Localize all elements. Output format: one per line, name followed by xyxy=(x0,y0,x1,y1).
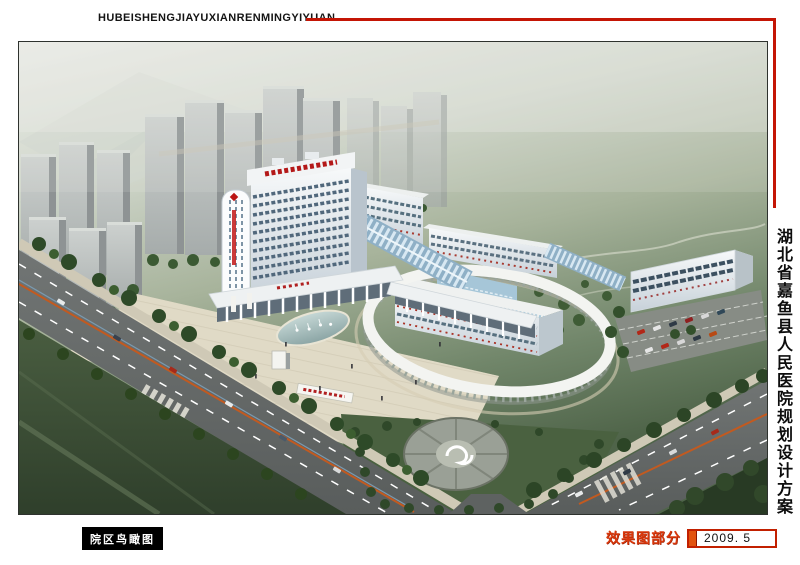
view-caption: 院区鸟瞰图 xyxy=(82,527,163,550)
vertical-sign-strip xyxy=(232,210,236,265)
bird-eye-rendering xyxy=(19,42,767,514)
section-label: 效果图部分 xyxy=(606,528,681,548)
romanized-title: HUBEISHENGJIAYUXIANRENMINGYIYUAN xyxy=(98,12,335,24)
accent-line-horizontal xyxy=(306,18,776,21)
date-text: 2009. 5 xyxy=(697,531,751,545)
rendering-viewport xyxy=(18,41,768,515)
accent-line-vertical xyxy=(773,18,776,208)
date-accent-bar xyxy=(689,531,697,546)
date-box: 2009. 5 xyxy=(687,529,777,548)
project-title-vertical: 湖北省嘉鱼县人民医院规划设计方案 xyxy=(769,228,797,528)
presentation-board: HUBEISHENGJIAYUXIANRENMINGYIYUAN xyxy=(0,0,800,565)
footer-right: 效果图部分 2009. 5 xyxy=(606,528,777,548)
